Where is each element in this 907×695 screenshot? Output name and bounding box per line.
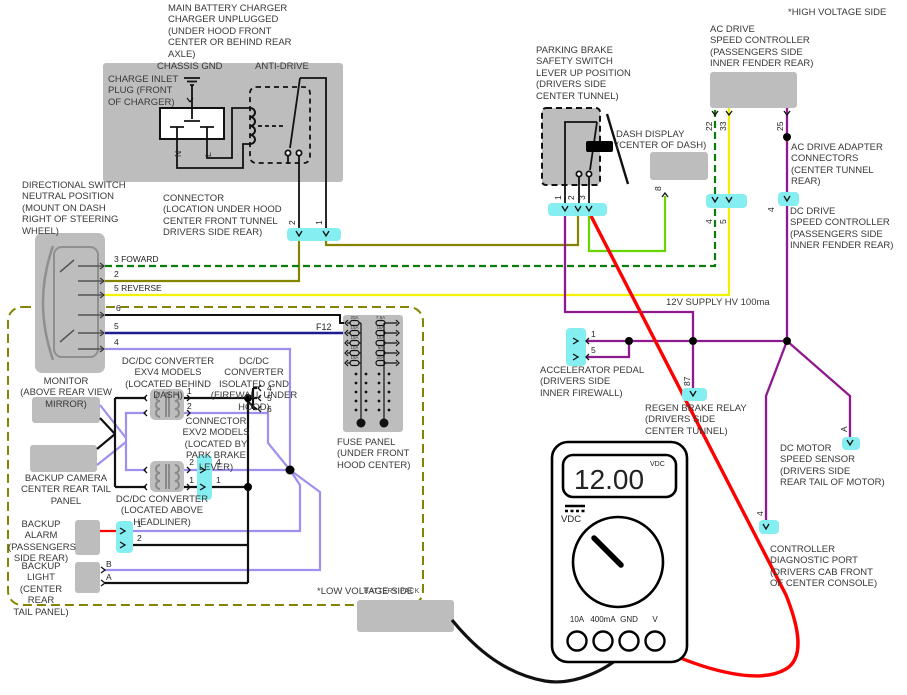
speed-sensor-label: DC MOTOR SPEED SENSOR (DRIVERS SIDE REAR… — [780, 443, 885, 489]
monitor-label: MONITOR (ABOVE REAR VIEW MIRROR) — [1, 376, 131, 410]
fuse-amp: 15A — [350, 325, 358, 330]
meter-display-unit: VDC — [650, 461, 665, 468]
headliner-label: DC/DC CONVERTER (LOCATED ABOVE HEADLINER… — [112, 494, 212, 528]
diag-pin4: 4 — [755, 511, 765, 516]
camera-label: BACKUP CAMERA CENTER REAR TAIL PANEL — [6, 473, 126, 507]
adapter-pin4: 4 — [704, 219, 714, 224]
inlet-pinN: N — [173, 151, 183, 157]
fuse-panel-label: FUSE PANEL (UNDER FRONT HOOD CENTER) — [337, 437, 410, 471]
supply-12v-label: 12V SUPPLY HV 100ma — [666, 297, 770, 308]
jack-400ma — [594, 632, 613, 651]
label-row5: 5 — [114, 321, 119, 331]
alarm-label: BACKUP ALARM (PASSENGERS SIDE REAR) — [8, 519, 74, 565]
dc-pin4: 4 — [766, 207, 776, 212]
pb-pin1: 1 — [553, 195, 563, 200]
diag-port-label: CONTROLLER DIAGNOSTIC PORT (DRIVERS CAB … — [770, 544, 877, 590]
pb-pin2: 2 — [566, 195, 576, 200]
hood-pin2: 2 — [287, 220, 297, 225]
ac-controller-box — [710, 72, 797, 108]
ac-w25: 25 — [775, 121, 785, 131]
directional-label: DIRECTIONAL SWITCH NEUTRAL POSITION (MOU… — [22, 180, 126, 237]
regen-label: REGEN BRAKE RELAY (DRIVERS SIDE CENTER T… — [645, 403, 747, 437]
ac-adapter-label: AC DRIVE ADAPTER CONNECTORS (CENTER TUNN… — [791, 142, 883, 188]
light-pinA: A — [106, 572, 112, 582]
fuse-amp: 15A — [376, 325, 384, 330]
battery-box — [357, 600, 454, 632]
jack-v — [646, 632, 665, 651]
exv2-left-bot: 1 — [189, 475, 194, 485]
battery-label: BATTERY PACK — [364, 588, 420, 596]
adapter-pin5: 5 — [718, 219, 728, 224]
directional-switch-box — [35, 233, 105, 373]
light-label: BACKUP LIGHT (CENTER REAR TAIL PANEL) — [8, 561, 74, 618]
jack-gnd — [620, 632, 639, 651]
dash-display-label: DASH DISPLAY (CENTER OF DASH) — [616, 129, 706, 152]
jack-label-400ma: 400mA — [590, 615, 616, 624]
ac-w33: 33 — [718, 121, 728, 131]
brake-lever-handle — [586, 141, 613, 152]
fuse-amp: 20A — [376, 355, 384, 360]
label-row2: 2 — [114, 269, 119, 279]
jack-10a — [568, 632, 587, 651]
fuse-amp: 15A — [350, 355, 358, 360]
dash-display-box — [650, 152, 708, 180]
ac-adapter-connector — [706, 194, 747, 208]
jack-label-10a: 10A — [570, 615, 585, 624]
regen-pin87: 87 — [682, 376, 692, 386]
jack-label-gnd: GND — [620, 615, 638, 624]
fuse-amp: 15A — [350, 335, 358, 340]
wire-row6 — [105, 315, 344, 323]
meter-range-label: VDC — [561, 514, 581, 525]
fuse-amp: 10A — [350, 345, 358, 350]
label-forward: 3 FOWARD — [114, 254, 159, 264]
exv2-right-bot: 1 — [216, 475, 221, 485]
accel-pin1: 1 — [591, 329, 596, 339]
sensor-pinA: A — [839, 426, 849, 432]
accelerator-connector — [566, 328, 586, 366]
alarm-pin2: 2 — [137, 533, 142, 543]
charger-label: MAIN BATTERY CHARGER CHARGER UNPLUGGED (… — [168, 3, 292, 60]
inlet-pinL: L — [203, 152, 213, 157]
hood-connector — [287, 228, 341, 241]
anti-drive-label: ANTI-DRIVE — [255, 61, 309, 72]
light-pinB: B — [106, 559, 112, 569]
hood-pin1: 1 — [314, 220, 324, 225]
dc-controller-label: DC DRIVE SPEED CONTROLLER (PASSENGERS SI… — [790, 206, 893, 252]
label-row4: 4 — [114, 337, 119, 347]
fuse-amp: 20A — [350, 315, 358, 320]
parking-brake-label: PARKING BRAKE SAFETY SWITCH LEVER UP POS… — [536, 45, 631, 102]
fuse-amp: 7.5A — [376, 315, 385, 320]
accelerator-label: ACCELERATOR PEDAL (DRIVERS SIDE INNER FI… — [540, 365, 644, 399]
wiring-diagram: 3 FOWARD 2 5 REVERSE 6 5 4 F12 2 1 1 2 3… — [0, 0, 907, 695]
pb-pin3: 3 — [577, 195, 587, 200]
jack-label-v: V — [652, 615, 658, 624]
dash-pin8: 8 — [653, 186, 663, 191]
alarm-box — [75, 520, 100, 555]
exv4-label: DC/DC CONVERTER EXV4 MODELS (LOCATED BEH… — [118, 356, 218, 402]
chassis-gnd-label: CHASSIS GND — [157, 61, 222, 72]
hood-connector-label: CONNECTOR (LOCATION UNDER HOOD CENTER FR… — [163, 193, 282, 239]
meter-reading: 12.00 — [574, 464, 644, 495]
label-reverse: 5 REVERSE — [114, 283, 162, 293]
camera-box — [30, 445, 97, 472]
ac-controller-label: AC DRIVE SPEED CONTROLLER (PASSENGERS SI… — [710, 24, 813, 70]
charge-inlet-label: CHARGE INLET PLUG (FRONT OF CHARGER) — [108, 74, 178, 108]
fuse-amp: 5A — [378, 345, 384, 350]
diag-connector — [759, 520, 779, 534]
fuse-amp: 15A — [376, 335, 384, 340]
light-box — [75, 562, 100, 593]
label-row6: 6 — [116, 303, 121, 313]
exv2-label: CONNECTOR EXV2 MODELS (LOCATED BY PARK B… — [172, 416, 260, 473]
high-voltage-label: *HIGH VOLTAGE SIDE — [788, 7, 886, 18]
wire-charger-to-parkbrake — [326, 216, 578, 245]
accel-pin5: 5 — [591, 345, 596, 355]
isolated-label: DC/DC CONVERTER ISOLATED GND (FIREWALL U… — [210, 356, 298, 413]
label-f12: F12 — [316, 322, 332, 332]
exv4-pin2: 2 — [187, 401, 192, 411]
